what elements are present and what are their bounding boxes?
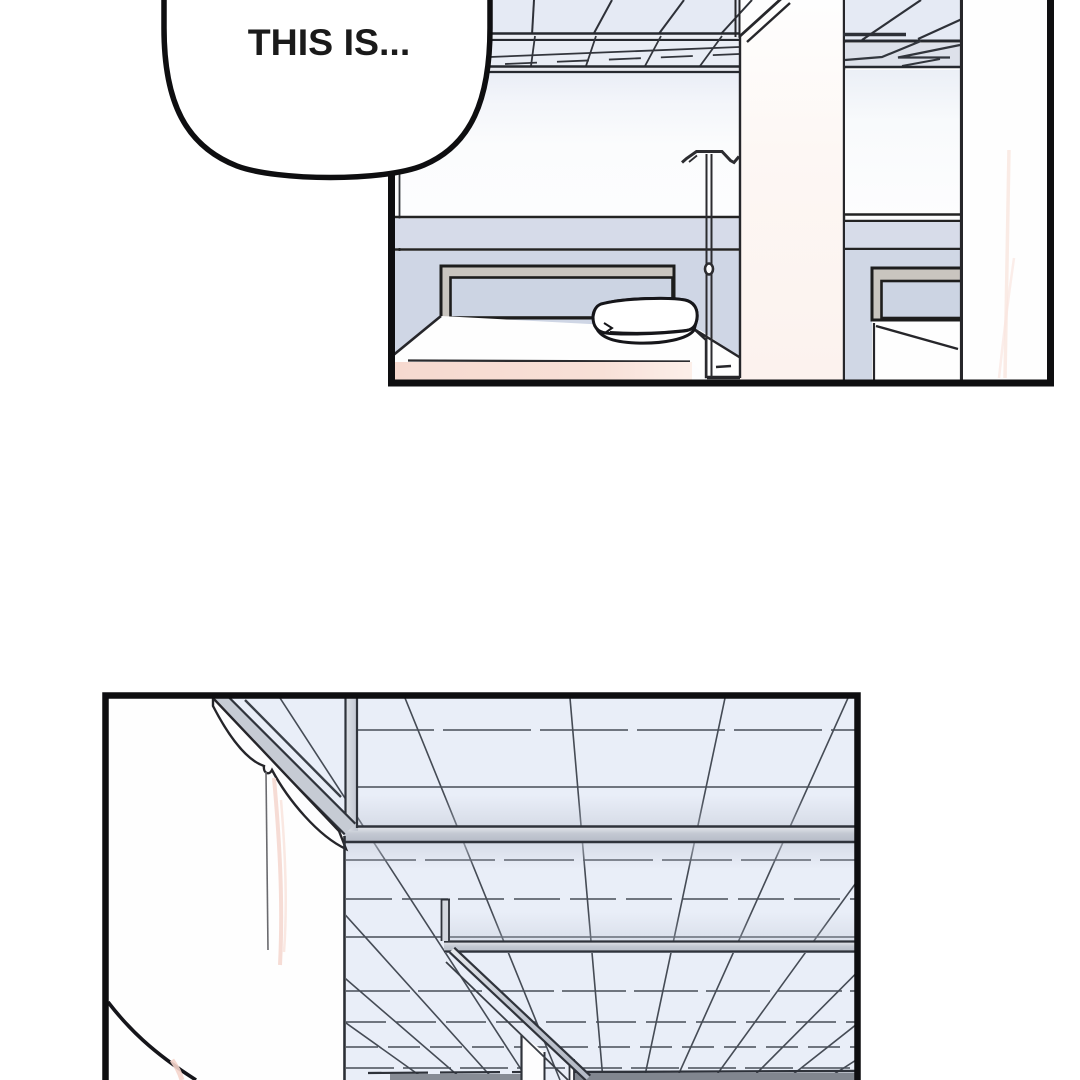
svg-text:THIS IS...: THIS IS... [248,21,411,63]
